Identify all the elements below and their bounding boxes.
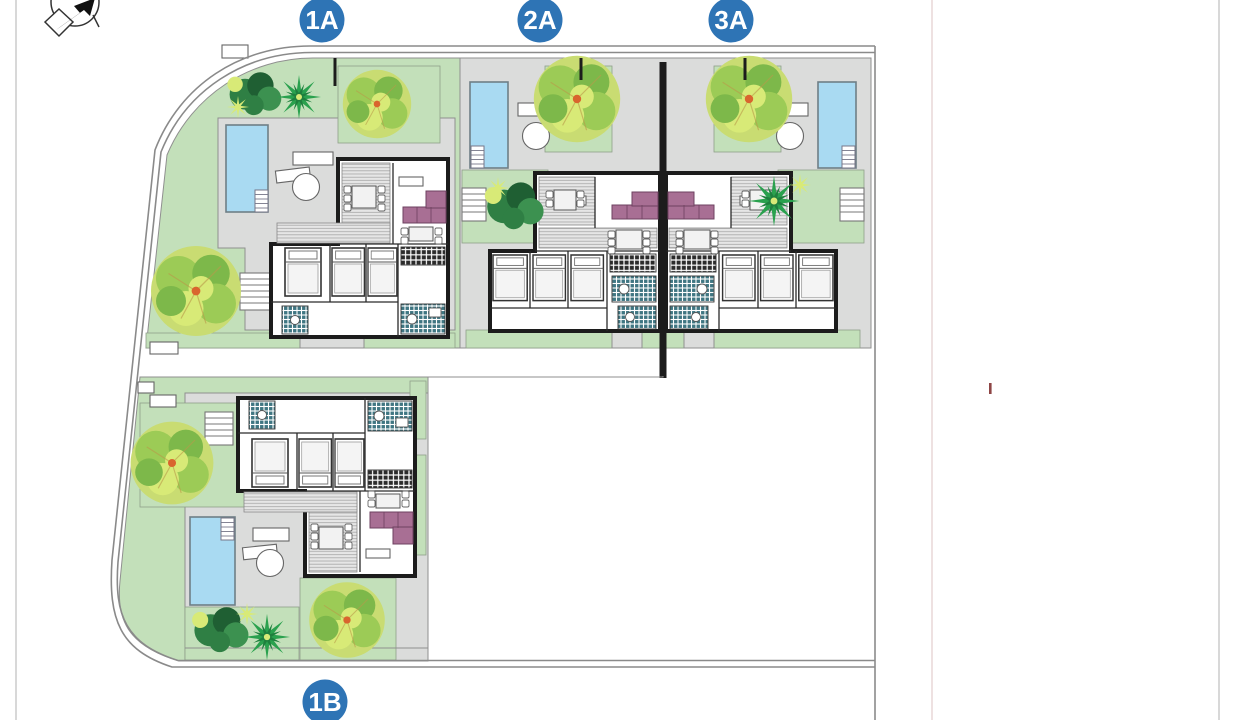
- badge-label-3a: 3A: [714, 5, 747, 35]
- exterior-stairs-3a: [840, 188, 864, 221]
- site-plan-canvas: 1A 2A 3A 1B: [0, 0, 1240, 720]
- pool-ladder-3a: [842, 146, 855, 168]
- sun-lounger: [293, 152, 333, 165]
- pool-ladder-1a: [255, 190, 268, 212]
- red-tick-marker: [989, 383, 992, 394]
- garden-table: [257, 550, 284, 577]
- badge-unit-1a[interactable]: 1A: [300, 0, 345, 43]
- exterior-stairs-2a: [462, 188, 486, 221]
- garden-table: [293, 174, 320, 201]
- exterior-stairs-1b: [205, 412, 233, 445]
- villa-plot-2a-3a: [460, 56, 871, 378]
- party-wall: [660, 62, 667, 378]
- badge-unit-2a[interactable]: 2A: [518, 0, 563, 43]
- pool-ladder-2a: [471, 146, 484, 168]
- badge-label-1a: 1A: [305, 5, 338, 35]
- badge-label-1b: 1B: [308, 687, 341, 717]
- sun-lounger: [253, 528, 289, 541]
- badge-label-2a: 2A: [523, 5, 556, 35]
- badge-unit-1b[interactable]: 1B: [303, 680, 348, 720]
- compass-north-arrow-icon: [45, 0, 99, 36]
- villa-plot-1b: [119, 377, 428, 661]
- badge-unit-3a[interactable]: 3A: [709, 0, 754, 43]
- page: 1A 2A 3A 1B: [0, 0, 1240, 720]
- exterior-stairs-1a: [240, 273, 271, 310]
- pool-ladder-1b: [221, 518, 234, 540]
